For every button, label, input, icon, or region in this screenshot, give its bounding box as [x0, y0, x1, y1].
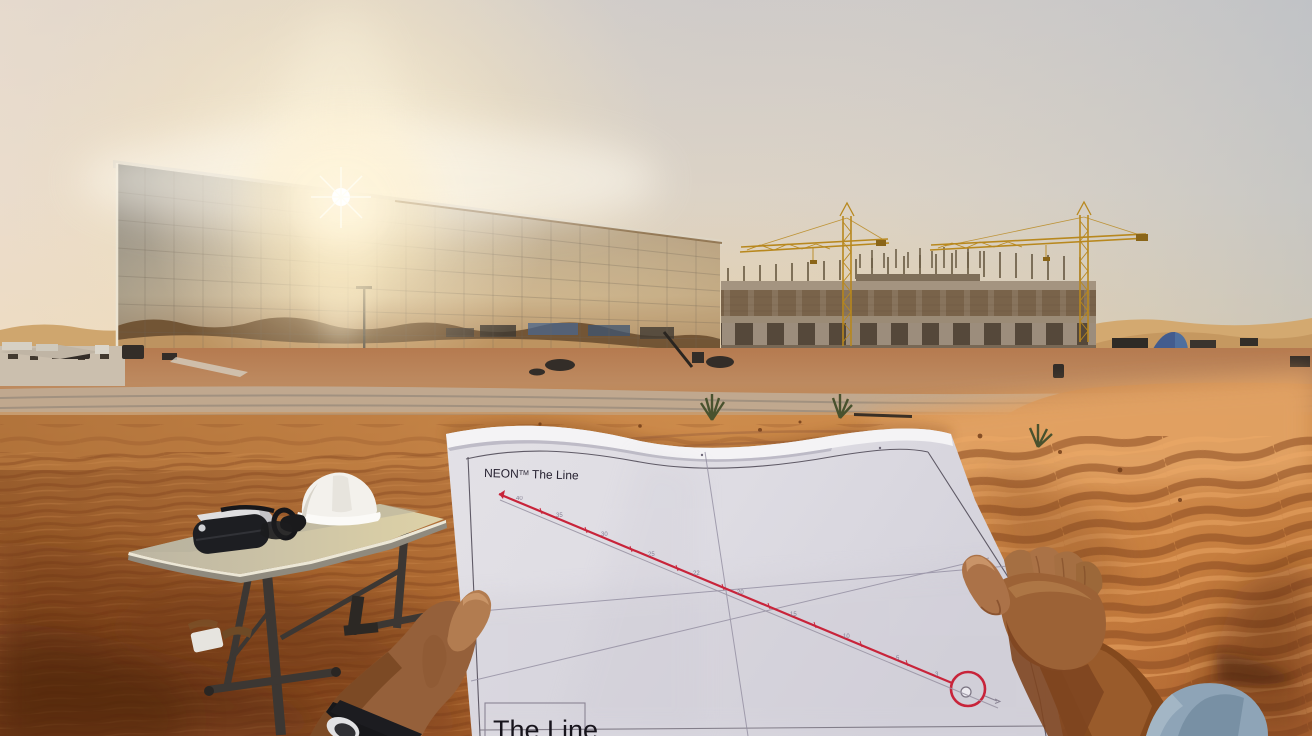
svg-text:20: 20 — [737, 590, 744, 596]
svg-text:NEONTM The Line: NEONTM The Line — [484, 466, 579, 482]
svg-text:40: 40 — [516, 496, 523, 502]
svg-text:25: 25 — [648, 552, 655, 558]
svg-text:15: 15 — [790, 612, 797, 618]
svg-text:22: 22 — [693, 571, 700, 577]
svg-text:10: 10 — [843, 634, 850, 640]
svg-text:The Line: The Line — [493, 715, 598, 736]
svg-text:35: 35 — [556, 513, 563, 519]
svg-text:30: 30 — [601, 532, 608, 538]
